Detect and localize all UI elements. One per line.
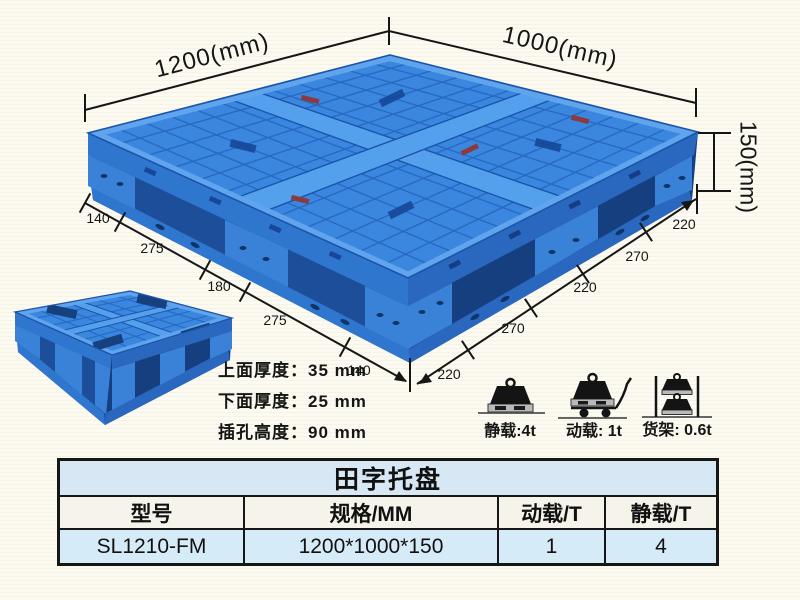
spec-table: 田字托盘 型号 规格/MM 动载/T 静载/T SL1210-FM 1200*1… xyxy=(57,458,719,566)
cell-size: 1200*1000*150 xyxy=(245,530,499,563)
spec-bottom-thickness: 下面厚度：25 mm xyxy=(218,387,367,412)
dim-right-270b: 270 xyxy=(625,248,648,264)
small-pallet-illustration xyxy=(15,291,232,425)
dim-left-180: 180 xyxy=(207,278,230,294)
spec-table-data-row: SL1210-FM 1200*1000*150 1 4 xyxy=(60,530,716,563)
dim-right-220c: 220 xyxy=(672,216,695,232)
header-size: 规格/MM xyxy=(245,497,499,528)
spec-table-title: 田字托盘 xyxy=(60,461,716,497)
dim-left-140a: 140 xyxy=(86,210,109,226)
rack-load-icon xyxy=(642,374,712,417)
pallet-spec-sheet: 1200(mm) 1000(mm) 150(mm) 140 275 180 27… xyxy=(0,0,800,600)
spec-table-header-row: 型号 规格/MM 动载/T 静载/T xyxy=(60,497,716,530)
dim-right-220a: 220 xyxy=(437,366,460,382)
dim-label-150: 150(mm) xyxy=(735,121,762,213)
dim-right-270a: 270 xyxy=(501,320,524,336)
spec-fork-height: 插孔高度：90 mm xyxy=(218,418,367,443)
cell-static-load: 4 xyxy=(606,530,716,563)
static-load-icon xyxy=(478,379,545,413)
cell-model: SL1210-FM xyxy=(60,530,245,563)
dim-left-275a: 275 xyxy=(140,240,163,256)
dim-left-275b: 275 xyxy=(263,312,286,328)
spec-top-thickness: 上面厚度：35 mm xyxy=(218,356,367,381)
dynamic-load-icon xyxy=(558,374,631,418)
cell-dynamic-load: 1 xyxy=(499,530,606,563)
dim-right-220b: 220 xyxy=(573,279,596,295)
static-load-label: 静载:4t xyxy=(484,417,536,441)
header-model: 型号 xyxy=(60,497,245,528)
dynamic-load-label: 动载: 1t xyxy=(566,417,622,441)
rack-load-label: 货架: 0.6t xyxy=(642,416,711,440)
header-static-load: 静载/T xyxy=(606,497,716,528)
header-dynamic-load: 动载/T xyxy=(499,497,606,528)
